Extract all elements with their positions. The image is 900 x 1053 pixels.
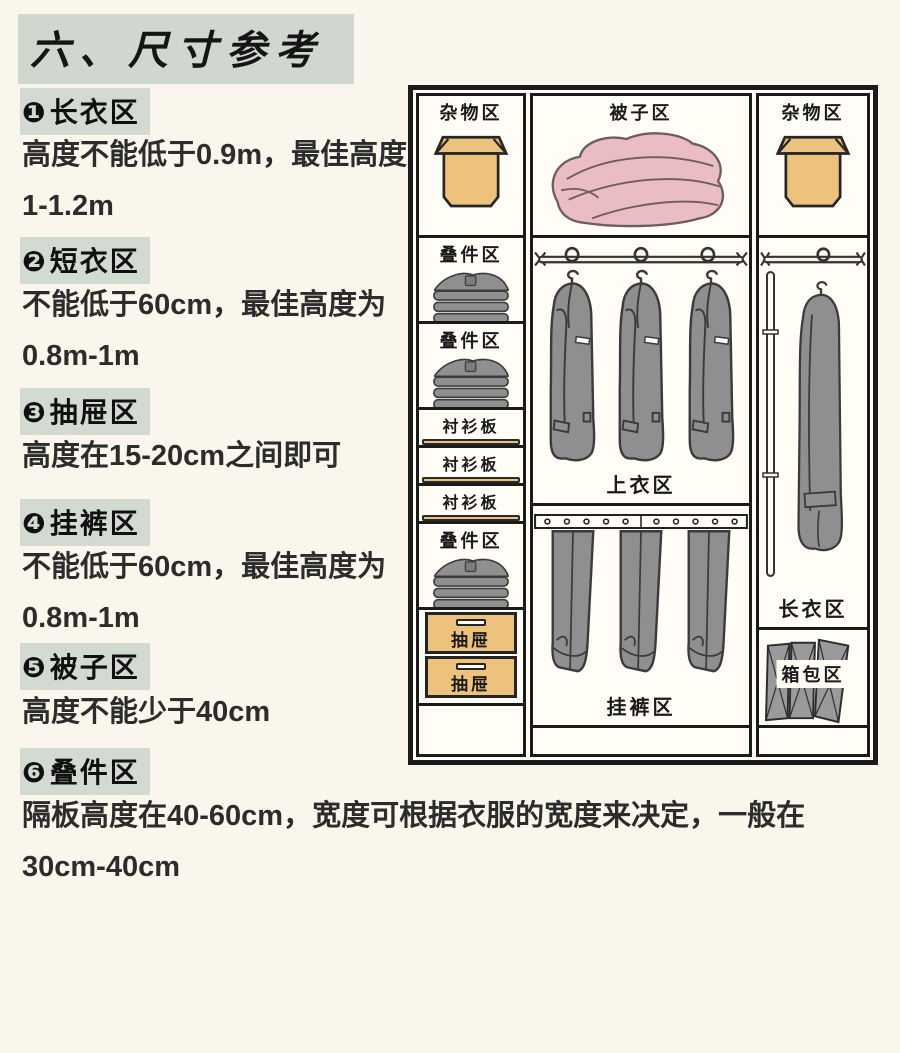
note-body-short-clothes: 不能低于60cm，最佳高度为0.8m-1m [22,280,420,382]
note-title: 挂裤区 [50,508,140,539]
zone-label: 杂物区 [440,99,503,125]
note-title: 被子区 [50,652,140,683]
note-title: 短衣区 [50,246,140,277]
folded-clothes-icon [423,267,519,324]
zone-misc-left: 杂物区 [419,96,523,238]
storage-box-icon [433,125,509,211]
zone-tops: 上衣区 [533,238,749,506]
note-body-quilt: 高度不能少于40cm [22,687,420,738]
note-title: 长衣区 [50,97,140,128]
note-title: 叠件区 [50,757,140,788]
drawer-1: 抽屉 [425,612,517,654]
drawer-label: 抽屉 [451,626,491,651]
zone-label: 箱包区 [777,660,850,688]
note-number: ❻ [22,757,48,788]
drawer-label: 抽屉 [451,670,491,695]
zone-label: 杂物区 [782,99,845,125]
hanging-pants [533,528,749,688]
drawer-handle-icon [456,619,486,626]
zone-label: 叠件区 [440,241,503,267]
note-heading-folded: ❻叠件区 [20,748,150,795]
shirt-board-icon [422,439,520,445]
note-heading-short-clothes: ❷短衣区 [20,237,150,284]
zone-label: 上衣区 [602,469,681,498]
note-heading-long-clothes: ❶长衣区 [20,88,150,135]
storage-box-icon [775,125,851,211]
zone-label: 衬衫板 [442,489,499,513]
wardrobe-left-column: 杂物区 叠件区 叠件区 衬衫板 衬衫板 衬衫板 [416,93,526,757]
zone-drawers: 抽屉 抽屉 [419,610,523,706]
zone-folded-2: 叠件区 [419,324,523,410]
zone-shirt-board-2: 衬衫板 [419,448,523,486]
zone-label: 被子区 [610,99,673,125]
hanging-jackets [533,268,749,466]
note-title: 抽屉区 [50,397,140,428]
zone-label: 挂裤区 [602,691,681,720]
zone-folded-1: 叠件区 [419,238,523,324]
pants-icon [545,528,601,688]
pants-icon [613,528,669,688]
wardrobe-plinth [419,706,523,754]
note-heading-pants: ❹挂裤区 [20,499,150,546]
wardrobe-diagram: 杂物区 叠件区 叠件区 衬衫板 衬衫板 衬衫板 [408,85,878,765]
zone-shirt-board-3: 衬衫板 [419,486,523,524]
zone-label: 长衣区 [774,593,853,622]
wardrobe-middle-column: 被子区 [530,93,752,757]
note-number: ❷ [22,246,48,277]
zone-long-clothes: 长衣区 [759,238,867,630]
note-heading-quilt: ❺被子区 [20,643,150,690]
zone-label: 叠件区 [440,327,503,353]
drawer-handle-icon [456,663,486,670]
note-heading-drawer: ❸抽屉区 [20,388,150,435]
jacket-icon [680,268,742,466]
note-body-folded: 隔板高度在40-60cm，宽度可根据衣服的宽度来决定，一般在30cm-40cm [22,791,884,893]
zone-pants: 挂裤区 [533,506,749,728]
zone-label: 叠件区 [440,527,503,553]
folded-clothes-icon [423,353,519,410]
wardrobe-plinth [759,728,867,754]
drawer-2: 抽屉 [425,656,517,698]
jacket-icon [610,268,672,466]
shirt-board-icon [422,477,520,483]
note-body-long-clothes: 高度不能低于0.9m，最佳高度1-1.2m [22,130,420,232]
zone-label: 衬衫板 [442,451,499,475]
quilt-icon [535,125,747,237]
lift-rod-icon [762,268,780,583]
zone-quilt: 被子区 [533,96,749,238]
note-body-drawer: 高度在15-20cm之间即可 [22,431,420,482]
zone-bags: 箱包区 [759,630,867,728]
zone-label: 衬衫板 [442,413,499,437]
zone-misc-right: 杂物区 [759,96,867,238]
note-number: ❸ [22,397,48,428]
pants-icon [681,528,737,688]
note-body-pants: 不能低于60cm，最佳高度为0.8m-1m [22,542,420,644]
note-number: ❺ [22,652,48,683]
note-number: ❶ [22,97,48,128]
long-coat-icon [785,266,857,588]
jacket-icon [541,268,603,466]
zone-shirt-board-1: 衬衫板 [419,410,523,448]
zone-folded-3: 叠件区 [419,524,523,610]
folded-clothes-icon [423,553,519,610]
page-title: 六、尺寸参考 [18,14,354,84]
shirt-board-icon [422,515,520,521]
wardrobe-right-column: 杂物区 [756,93,870,757]
note-number: ❹ [22,508,48,539]
wardrobe-plinth [533,728,749,754]
